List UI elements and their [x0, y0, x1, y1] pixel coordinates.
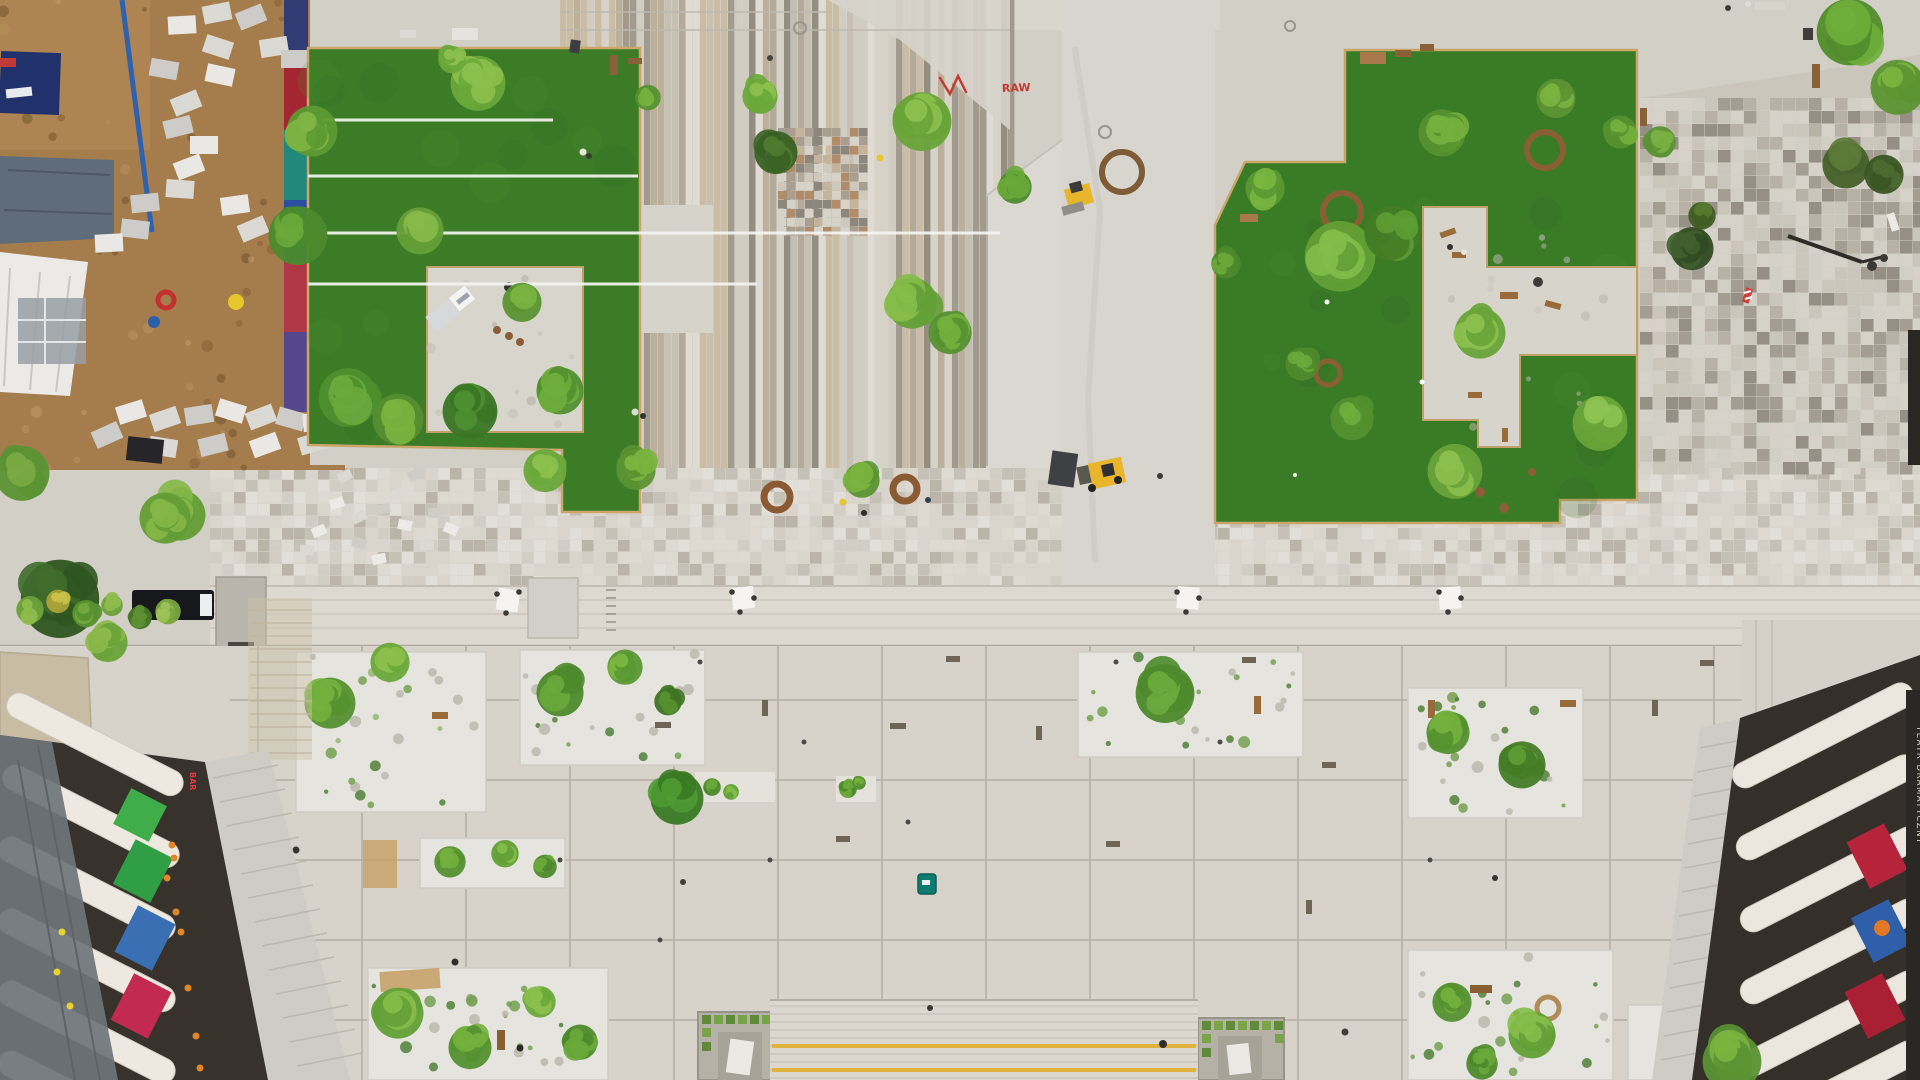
island-gravel [1440, 778, 1446, 784]
checker-paving-mid [306, 516, 318, 528]
lawn-mottle [307, 318, 342, 353]
checker-paving-ne [1835, 449, 1848, 462]
theatre-sign: TEATR DRAMATYCZNY [1914, 725, 1920, 845]
terrazzo-patch [814, 155, 823, 164]
terrazzo-patch [787, 209, 796, 218]
checker-paving-mid [714, 504, 726, 516]
checker-paving-ne [1848, 358, 1861, 371]
workers-and-walkers [767, 55, 773, 61]
checker-paving-ne [1744, 124, 1757, 137]
checker-paving-mid [750, 540, 762, 552]
checker-paving-ne [1744, 371, 1757, 384]
checker-paving-ne [1757, 124, 1770, 137]
checker-paving-mid [822, 528, 834, 540]
tree-highlight [707, 780, 714, 787]
checker-paving-mid [1734, 540, 1746, 552]
checker-paving-ne [1718, 423, 1731, 436]
checker-paving-ne [1718, 111, 1731, 124]
fountain-seats [1174, 589, 1180, 595]
island-gravel [1561, 803, 1565, 807]
checker-paving-mid [1830, 564, 1842, 576]
checker-paving-ne [1705, 267, 1718, 280]
checker-paving-mid [978, 480, 990, 492]
checker-paving-mid [438, 492, 450, 504]
checker-paving-ne [1718, 358, 1731, 371]
checker-paving-ne [1744, 358, 1757, 371]
checker-paving-mid [1734, 480, 1746, 492]
workers [54, 969, 61, 976]
checker-paving-ne [1848, 384, 1861, 397]
checker-paving-mid [1842, 480, 1854, 492]
checker-paving-ne [1757, 137, 1770, 150]
checker-paving-mid [954, 528, 966, 540]
plaza-benches [946, 656, 960, 662]
poster-accent [1874, 920, 1890, 936]
terrazzo-patch [859, 155, 868, 164]
checker-paving-mid [1818, 528, 1830, 540]
checker-paving-mid [630, 552, 642, 564]
island-gravel [1594, 1024, 1599, 1029]
pedestal-planters [1202, 1021, 1211, 1030]
ne-benches [1755, 2, 1785, 10]
checker-paving-mid [1866, 492, 1878, 504]
tree-highlight [852, 467, 866, 481]
checker-paving-mid [834, 504, 846, 516]
gravel [1581, 312, 1590, 321]
checker-paving-mid [246, 540, 258, 552]
checker-paving-ne [1900, 306, 1913, 319]
checker-paving-mid [246, 528, 258, 540]
island-gravel [428, 668, 437, 677]
checker-paving-mid [1710, 528, 1722, 540]
checker-paving-ne [1848, 436, 1861, 449]
checker-paving-mid [942, 564, 954, 576]
checker-paving-mid [990, 480, 1002, 492]
checker-paving-mid [762, 528, 774, 540]
checker-paving-mid [798, 564, 810, 576]
terrazzo-patch [805, 191, 814, 200]
checker-paving-mid [234, 492, 246, 504]
checker-paving-mid [222, 564, 234, 576]
checker-paving-ne [1718, 163, 1731, 176]
checker-paving-ne [1809, 137, 1822, 150]
checker-paving-mid [1374, 540, 1386, 552]
checker-paving-mid [1686, 516, 1698, 528]
checker-paving-ne [1679, 306, 1692, 319]
checker-paving-mid [846, 540, 858, 552]
island-gravel [1478, 701, 1486, 709]
pedestrians [293, 847, 300, 854]
tree-highlight [315, 684, 335, 704]
checker-paving-ne [1796, 371, 1809, 384]
checker-paving-mid [498, 552, 510, 564]
checker-paving-mid [1806, 540, 1818, 552]
checker-paving-mid [1674, 492, 1686, 504]
pedestrians [1342, 1029, 1349, 1036]
terrazzo-patch [832, 200, 841, 209]
checker-paving-ne [1848, 189, 1861, 202]
checker-paving-ne [1770, 423, 1783, 436]
checker-paving-mid [1902, 552, 1914, 564]
dirt-texture [189, 458, 200, 469]
checker-paving-ne [1809, 202, 1822, 215]
checker-paving-mid [1890, 528, 1902, 540]
checker-paving-mid [222, 516, 234, 528]
checker-paving-ne [1757, 371, 1770, 384]
top-benches [452, 28, 478, 40]
lawn-mottle [512, 76, 548, 112]
checker-paving-ne [1757, 176, 1770, 189]
checker-paving-ne [1718, 176, 1731, 189]
checker-paving-ne [1692, 189, 1705, 202]
checker-paving-mid [1302, 552, 1314, 564]
checker-paving-mid [786, 516, 798, 528]
checker-paving-mid [474, 516, 486, 528]
checker-paving-ne [1848, 332, 1861, 345]
checker-paving-mid [1614, 516, 1626, 528]
checker-paving-mid [306, 564, 318, 576]
checker-paving-mid [510, 540, 522, 552]
checker-paving-ne [1809, 228, 1822, 241]
checker-paving-ne [1640, 306, 1653, 319]
checker-paving-mid [354, 480, 366, 492]
checker-paving-ne [1692, 124, 1705, 137]
cafe-chairs [171, 855, 178, 862]
cafe-chairs [197, 1065, 204, 1072]
island-gravel [1523, 952, 1533, 962]
checker-paving-mid [486, 528, 498, 540]
terrazzo-patch [823, 191, 832, 200]
checker-paving-mid [378, 564, 390, 576]
checker-paving-mid [702, 516, 714, 528]
checker-paving-ne [1809, 345, 1822, 358]
checker-paving-mid [258, 492, 270, 504]
promenade [210, 586, 1920, 646]
terrazzo-patch [805, 155, 814, 164]
checker-paving-mid [690, 540, 702, 552]
checker-paving-mid [234, 540, 246, 552]
checker-paving-ne [1770, 163, 1783, 176]
checker-paving-ne [1861, 319, 1874, 332]
terrazzo-patch [841, 146, 850, 155]
checker-paving-mid [630, 516, 642, 528]
checker-paving-mid [438, 468, 450, 480]
checker-paving-ne [1809, 410, 1822, 423]
checker-paving-ne [1640, 176, 1653, 189]
gravel [1563, 256, 1570, 263]
checker-paving-mid [966, 468, 978, 480]
checker-paving-ne [1744, 163, 1757, 176]
island-gravel [1455, 697, 1460, 702]
checker-paving-ne [1653, 163, 1666, 176]
checker-paving-mid [1242, 540, 1254, 552]
tree-highlight [22, 599, 33, 610]
checker-paving-mid [354, 468, 366, 480]
terrazzo-patch [850, 218, 859, 227]
checker-paving-ne [1666, 98, 1679, 111]
checker-paving-ne [1835, 384, 1848, 397]
checker-paving-mid [366, 492, 378, 504]
tree-highlight [843, 782, 850, 789]
checker-paving-mid [1278, 540, 1290, 552]
tree-highlight [281, 213, 304, 236]
checker-paving-mid [882, 504, 894, 516]
dirt-texture [122, 197, 130, 205]
checker-paving-mid [894, 516, 906, 528]
checker-paving-mid [1794, 492, 1806, 504]
checker-paving-mid [870, 540, 882, 552]
island-gravel [1091, 690, 1096, 695]
checker-paving-mid [582, 564, 594, 576]
checker-paving-mid [858, 540, 870, 552]
checker-paving-ne [1822, 267, 1835, 280]
checker-paving-ne [1796, 267, 1809, 280]
pedestal-planters [762, 1015, 771, 1024]
island-gravel [523, 673, 529, 679]
terrazzo-patch [796, 218, 805, 227]
checker-paving-mid [1650, 552, 1662, 564]
checker-paving-mid [1626, 540, 1638, 552]
checker-paving-mid [690, 504, 702, 516]
checker-paving-ne [1887, 449, 1900, 462]
checker-paving-mid [1878, 528, 1890, 540]
checker-paving-ne [1861, 124, 1874, 137]
checker-paving-ne [1731, 306, 1744, 319]
cafe-chairs [178, 929, 185, 936]
checker-paving-mid [1014, 492, 1026, 504]
terrazzo-patch [841, 137, 850, 146]
checker-paving-ne [1874, 306, 1887, 319]
workers-and-walkers [586, 153, 592, 159]
checker-paving-mid [534, 552, 546, 564]
checker-paving-ne [1666, 358, 1679, 371]
checker-paving-mid [498, 540, 510, 552]
checker-paving-ne [1718, 202, 1731, 215]
checker-paving-mid [642, 540, 654, 552]
terrazzo-patch [805, 209, 814, 218]
checker-paving-ne [1744, 462, 1757, 475]
checker-paving-ne [1705, 293, 1718, 306]
dirt-texture [31, 406, 43, 418]
checker-paving-mid [522, 564, 534, 576]
checker-paving-ne [1705, 98, 1718, 111]
checker-paving-ne [1731, 241, 1744, 254]
checker-paving-mid [486, 552, 498, 564]
checker-paving-mid [702, 492, 714, 504]
checker-paving-mid [270, 540, 282, 552]
lawn-mottle [1529, 197, 1561, 229]
island-gravel [326, 747, 337, 758]
checker-paving-mid [690, 468, 702, 480]
checker-paving-ne [1887, 137, 1900, 150]
checker-paving-ne [1692, 410, 1705, 423]
checker-paving-mid [930, 540, 942, 552]
checker-paving-ne [1731, 163, 1744, 176]
checker-paving-mid [1674, 540, 1686, 552]
dirt-texture [228, 429, 236, 437]
checker-paving-mid [1914, 504, 1920, 516]
checker-paving-ne [1874, 332, 1887, 345]
checker-paving-ne [1848, 462, 1861, 475]
checker-paving-ne [1874, 345, 1887, 358]
checker-paving-ne [1887, 332, 1900, 345]
tree-highlight [660, 691, 671, 702]
checker-paving-mid [486, 540, 498, 552]
checker-paving-mid [270, 492, 282, 504]
checker-paving-mid [1050, 516, 1062, 528]
terrazzo-patch [814, 173, 823, 182]
terrazzo-patch [823, 128, 832, 137]
cafe-chairs [193, 1033, 200, 1040]
checker-paving-mid [1734, 552, 1746, 564]
checker-paving-mid [1290, 552, 1302, 564]
checker-paving-mid [966, 504, 978, 516]
checker-paving-mid [1722, 480, 1734, 492]
checker-paving-ne [1848, 345, 1861, 358]
checker-paving-mid [1038, 504, 1050, 516]
tree-highlight [1465, 314, 1485, 334]
tree-highlight [1584, 402, 1605, 423]
checker-paving-mid [798, 480, 810, 492]
checker-paving-mid [1914, 564, 1920, 576]
checker-paving-ne [1796, 345, 1809, 358]
checker-paving-mid [474, 552, 486, 564]
checker-paving-ne [1822, 254, 1835, 267]
checker-paving-mid [1782, 564, 1794, 576]
checker-paving-ne [1835, 345, 1848, 358]
checker-paving-mid [1458, 540, 1470, 552]
picnic-benches [1395, 50, 1411, 57]
checker-paving-mid [438, 480, 450, 492]
checker-paving-ne [1640, 267, 1653, 280]
checker-paving-ne [1744, 345, 1757, 358]
checker-paving-mid [1734, 516, 1746, 528]
checker-paving-ne [1770, 124, 1783, 137]
checker-paving-ne [1718, 332, 1731, 345]
checker-paving-mid [1794, 552, 1806, 564]
planter-pots [1528, 468, 1536, 476]
checker-paving-ne [1861, 111, 1874, 124]
checker-paving-ne [1861, 98, 1874, 111]
checker-paving-mid [426, 528, 438, 540]
checker-paving-mid [978, 564, 990, 576]
checker-paving-mid [282, 504, 294, 516]
pedestal-planters [1202, 1048, 1211, 1057]
plaza-benches [1322, 762, 1336, 768]
checker-paving-ne [1822, 358, 1835, 371]
terrazzo-patch [850, 191, 859, 200]
checker-paving-mid [618, 564, 630, 576]
checker-paving-ne [1640, 163, 1653, 176]
checker-paving-ne [1809, 111, 1822, 124]
checker-paving-ne [1640, 254, 1653, 267]
checker-paving-ne [1822, 319, 1835, 332]
checker-paving-mid [582, 540, 594, 552]
tree-highlight [937, 316, 954, 333]
ne-benches [1803, 28, 1813, 40]
gravel [1469, 423, 1477, 431]
checker-paving-ne [1835, 124, 1848, 137]
checker-paving-mid [402, 552, 414, 564]
checker-paving-ne [1874, 202, 1887, 215]
checker-paving-ne [1653, 98, 1666, 111]
checker-paving-mid [738, 468, 750, 480]
terrazzo-patch [832, 191, 841, 200]
checker-paving-ne [1705, 124, 1718, 137]
island-gravel [370, 760, 381, 771]
checker-paving-mid [294, 492, 306, 504]
checker-paving-mid [798, 528, 810, 540]
checker-paving-ne [1913, 202, 1920, 215]
checker-paving-mid [954, 540, 966, 552]
checker-paving-ne [1913, 241, 1920, 254]
checker-paving-mid [1434, 564, 1446, 576]
tree-highlight [497, 843, 508, 854]
checker-paving-mid [354, 564, 366, 576]
terrazzo-patch [787, 191, 796, 200]
checker-paving-ne [1809, 293, 1822, 306]
checker-paving-mid [1770, 516, 1782, 528]
checker-paving-mid [1362, 528, 1374, 540]
checker-paving-mid [1050, 540, 1062, 552]
checker-paving-ne [1913, 280, 1920, 293]
checker-paving-ne [1705, 306, 1718, 319]
lawn-mottle [1382, 296, 1410, 324]
island-gravel [1593, 982, 1598, 987]
checker-paving-mid [1542, 552, 1554, 564]
checker-paving-mid [678, 552, 690, 564]
checker-paving-ne [1718, 254, 1731, 267]
checker-paving-mid [906, 540, 918, 552]
island-gravel [400, 1041, 412, 1053]
checker-paving-mid [1614, 564, 1626, 576]
plaza-benches [762, 700, 768, 716]
checker-paving-mid [918, 516, 930, 528]
tree-foliage [1395, 216, 1418, 239]
island-gravel [1191, 726, 1199, 734]
checker-paving-ne [1835, 358, 1848, 371]
island-benches [432, 712, 448, 719]
checker-paving-ne [1757, 150, 1770, 163]
island-gravel [1420, 971, 1426, 977]
gravel [514, 390, 519, 395]
island-gravel [1449, 795, 1459, 805]
checker-paving-ne [1783, 150, 1796, 163]
checker-paving-ne [1653, 267, 1666, 280]
checker-paving-mid [1638, 480, 1650, 492]
checker-paving-mid [1914, 552, 1920, 564]
checker-paving-ne [1822, 397, 1835, 410]
notch-objects [1325, 300, 1330, 305]
checker-paving-ne [1887, 267, 1900, 280]
checker-paving-mid [882, 552, 894, 564]
checker-paving-mid [1218, 540, 1230, 552]
cafe-chairs [173, 909, 180, 916]
tree-highlight [1508, 747, 1526, 765]
checker-paving-ne [1744, 98, 1757, 111]
checker-paving-ne [1848, 228, 1861, 241]
checker-paving-ne [1822, 332, 1835, 345]
tree-highlight [1872, 159, 1887, 174]
tree-highlight [1148, 671, 1171, 694]
checker-paving-ne [1796, 358, 1809, 371]
terrazzo-patch [814, 200, 823, 209]
island-gravel [1424, 1049, 1435, 1060]
checker-paving-mid [1014, 528, 1026, 540]
checker-paving-mid [1218, 552, 1230, 564]
checker-paving-mid [510, 504, 522, 516]
terrazzo-patch [823, 218, 832, 227]
